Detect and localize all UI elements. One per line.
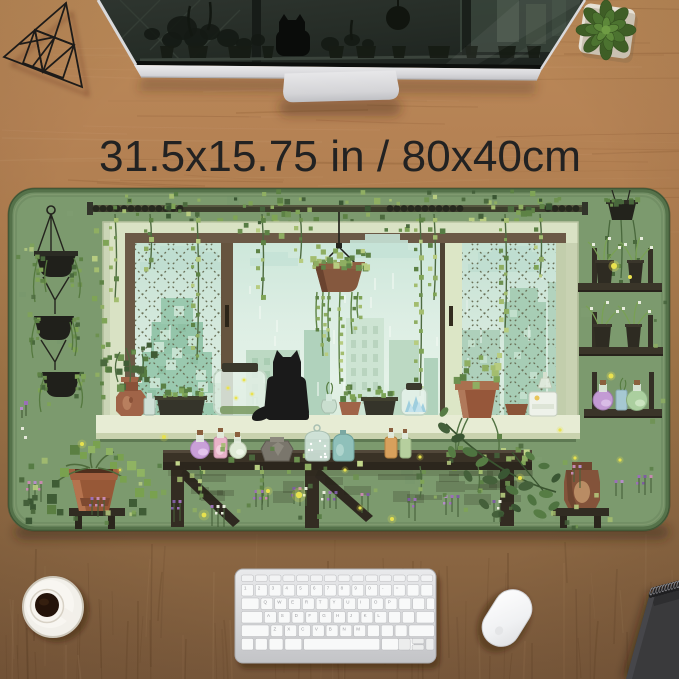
svg-text:K: K <box>364 613 367 618</box>
svg-text:Z: Z <box>274 627 277 632</box>
svg-text:O: O <box>374 600 378 605</box>
svg-text:J: J <box>350 613 352 618</box>
svg-text:U: U <box>346 600 349 605</box>
svg-text:W: W <box>277 600 282 605</box>
svg-text:T: T <box>319 600 322 605</box>
svg-text:31.5x15.75 in / 80x40cm: 31.5x15.75 in / 80x40cm <box>99 132 581 181</box>
svg-text:=: = <box>396 586 399 591</box>
svg-text:S: S <box>281 613 284 618</box>
svg-text:A: A <box>267 613 270 618</box>
svg-text:N: N <box>343 627 346 632</box>
svg-text:H: H <box>336 613 339 618</box>
svg-text:Q: Q <box>264 600 268 605</box>
svg-text:Y: Y <box>333 600 336 605</box>
svg-text:M: M <box>356 627 360 632</box>
svg-text:I: I <box>360 600 361 605</box>
svg-text:B: B <box>329 627 332 632</box>
svg-text:X: X <box>287 627 290 632</box>
svg-text:V: V <box>315 627 318 632</box>
svg-text:G: G <box>322 613 326 618</box>
svg-text:E: E <box>291 600 294 605</box>
svg-text:F: F <box>308 613 311 618</box>
svg-text:P: P <box>388 600 391 605</box>
